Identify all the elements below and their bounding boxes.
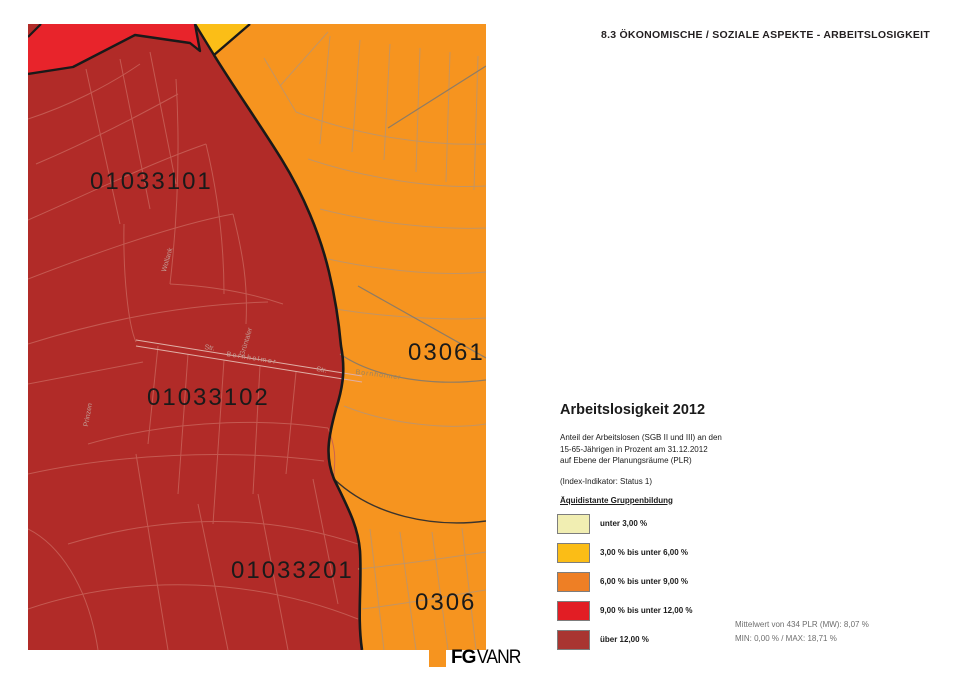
stats-min-max: MIN: 0,00 % / MAX: 18,71 % bbox=[735, 632, 869, 646]
legend-swatch-3-6 bbox=[557, 543, 590, 563]
legend-item: unter 3,00 % bbox=[557, 514, 927, 534]
legend-swatch-over-12 bbox=[557, 630, 590, 650]
legend-indicator-note: (Index-Indikator: Status 1) bbox=[560, 477, 927, 486]
street-label-str-1: Str. bbox=[204, 344, 215, 353]
legend-description-line: Anteil der Arbeitslosen (SGB II und III)… bbox=[560, 432, 927, 444]
legend-label: 6,00 % bis unter 9,00 % bbox=[600, 577, 688, 586]
page: 8.3 ÖKONOMISCHE / SOZIALE ASPEKTE - ARBE… bbox=[0, 0, 960, 679]
legend-description-line: auf Ebene der Planungsräume (PLR) bbox=[560, 455, 927, 467]
legend-item: 6,00 % bis unter 9,00 % bbox=[557, 572, 927, 592]
legend-statistics: Mittelwert von 434 PLR (MW): 8,07 % MIN:… bbox=[735, 618, 869, 646]
legend-description: Anteil der Arbeitslosen (SGB II und III)… bbox=[560, 432, 927, 467]
legend-label: 9,00 % bis unter 12,00 % bbox=[600, 606, 693, 615]
map-notch bbox=[429, 645, 446, 667]
legend-label: unter 3,00 % bbox=[600, 519, 647, 528]
legend-label: über 12,00 % bbox=[600, 635, 649, 644]
region-label-01033201: 01033201 bbox=[231, 557, 354, 585]
unemployment-map: 01033101 01033102 01033201 03061 0306 St… bbox=[28, 24, 486, 650]
legend-swatch-9-12 bbox=[557, 601, 590, 621]
publisher-logo: FGVANR bbox=[451, 647, 523, 669]
legend-item: 3,00 % bis unter 6,00 % bbox=[557, 543, 927, 563]
legend-description-line: 15-65-Jährigen in Prozent am 31.12.2012 bbox=[560, 444, 927, 456]
legend-swatch-6-9 bbox=[557, 572, 590, 592]
legend-label: 3,00 % bis unter 6,00 % bbox=[600, 548, 688, 557]
region-label-0306: 0306 bbox=[415, 589, 476, 617]
legend-grouping-heading: Äquidistante Gruppenbildung bbox=[560, 496, 927, 505]
page-header-title: 8.3 ÖKONOMISCHE / SOZIALE ASPEKTE - ARBE… bbox=[601, 29, 930, 41]
region-label-03061: 03061 bbox=[408, 339, 485, 367]
logo-light-part: VANR bbox=[477, 647, 521, 669]
stats-mean: Mittelwert von 434 PLR (MW): 8,07 % bbox=[735, 618, 869, 632]
region-label-01033102: 01033102 bbox=[147, 384, 270, 412]
region-label-01033101: 01033101 bbox=[90, 168, 213, 196]
logo-bold-part: FG bbox=[451, 647, 475, 668]
legend-swatch-under-3 bbox=[557, 514, 590, 534]
legend-title: Arbeitslosigkeit 2012 bbox=[560, 402, 927, 418]
